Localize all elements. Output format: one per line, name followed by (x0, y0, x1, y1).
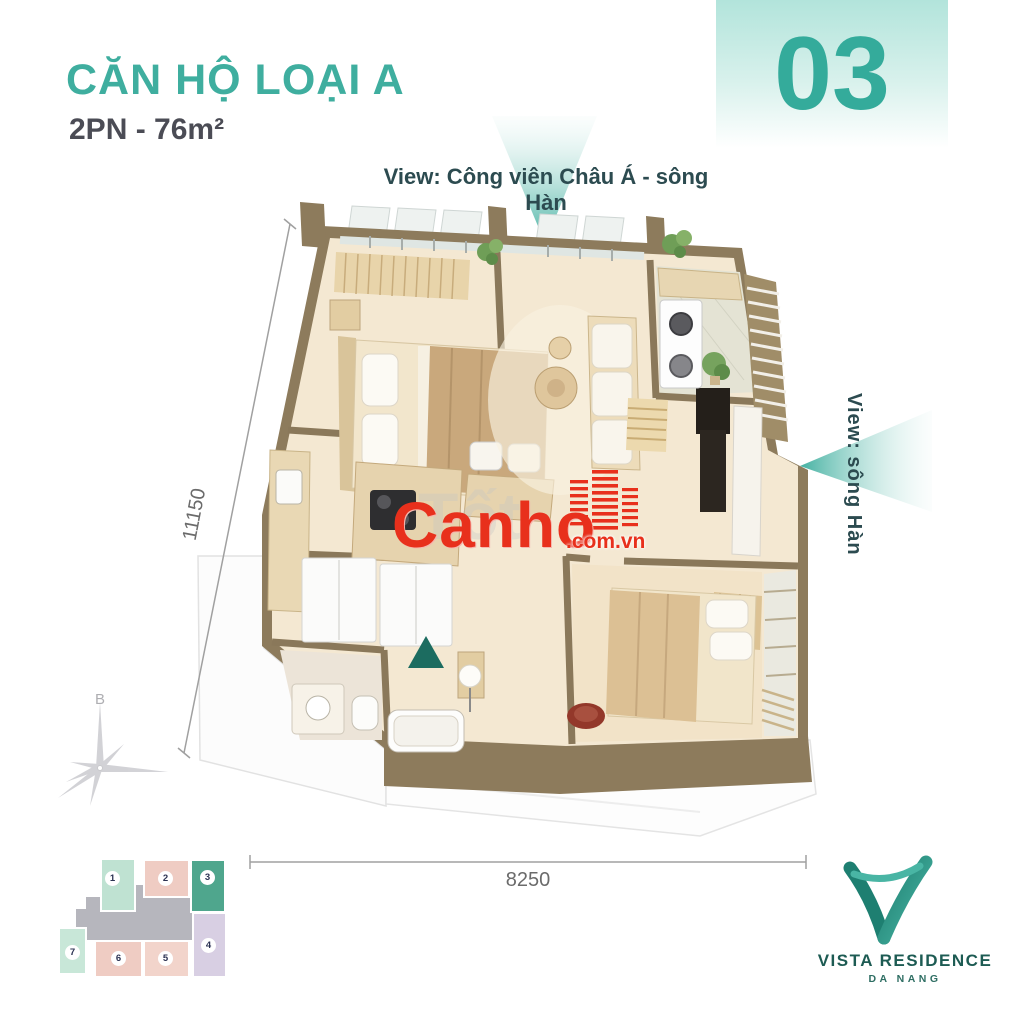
logo-location: DA NANG (798, 973, 1012, 985)
sofa-cushion (592, 324, 632, 368)
pillow (706, 600, 748, 628)
view-label-top: View: Công viên Châu Á - sông Hàn (368, 164, 724, 216)
keyplan-unit-3 (190, 859, 226, 913)
keyplan-unit-6-number: 6 (111, 951, 126, 966)
vista-logo-mark (850, 862, 926, 938)
sofa-cushion (592, 420, 632, 464)
tv-cabinet (696, 388, 730, 434)
basin (306, 696, 330, 720)
wardrobe (334, 252, 470, 300)
keyplan-unit-5-number: 5 (158, 951, 173, 966)
pillow (362, 354, 398, 406)
deck-slats (626, 398, 668, 452)
sink (276, 470, 302, 504)
logo-name: VISTA RESIDENCE (798, 951, 1012, 971)
pillow (362, 414, 398, 466)
toilet (352, 696, 378, 730)
keyplan-unit-4-number: 4 (201, 938, 216, 953)
compass-rose (58, 702, 168, 806)
view-arrow-right (800, 410, 932, 512)
sphere-lamp (459, 665, 481, 687)
page-subtitle: 2PN - 76m² (69, 113, 224, 147)
keyplan-unit-7-number: 7 (65, 945, 80, 960)
view-label-right: View: sông Hàn (842, 393, 865, 556)
dimension-horizontal: 8250 (428, 869, 628, 892)
side-table (549, 337, 571, 359)
keyplan-core (76, 909, 88, 927)
bed2-blanket (606, 590, 700, 722)
pillow (710, 632, 752, 660)
sofa-cushion (592, 372, 632, 416)
flyer-page: CĂN HỘ LOẠI A 2PN - 76m² 03 View: Công v… (0, 0, 1024, 1024)
compass-north-label: B (95, 691, 105, 708)
canho-watermark-suffix: .com.vn (566, 530, 645, 554)
keyplan-unit-2-number: 2 (158, 871, 173, 886)
keyplan-unit-3-number: 3 (200, 870, 215, 885)
nightstand (330, 300, 360, 330)
keyplan-unit-1 (100, 858, 136, 912)
keyplan-unit-1-number: 1 (105, 871, 120, 886)
keyplan: 1 2 3 4 5 6 7 (50, 845, 250, 1005)
page-title: CĂN HỘ LOẠI A (66, 56, 405, 105)
sideboard (732, 406, 762, 556)
